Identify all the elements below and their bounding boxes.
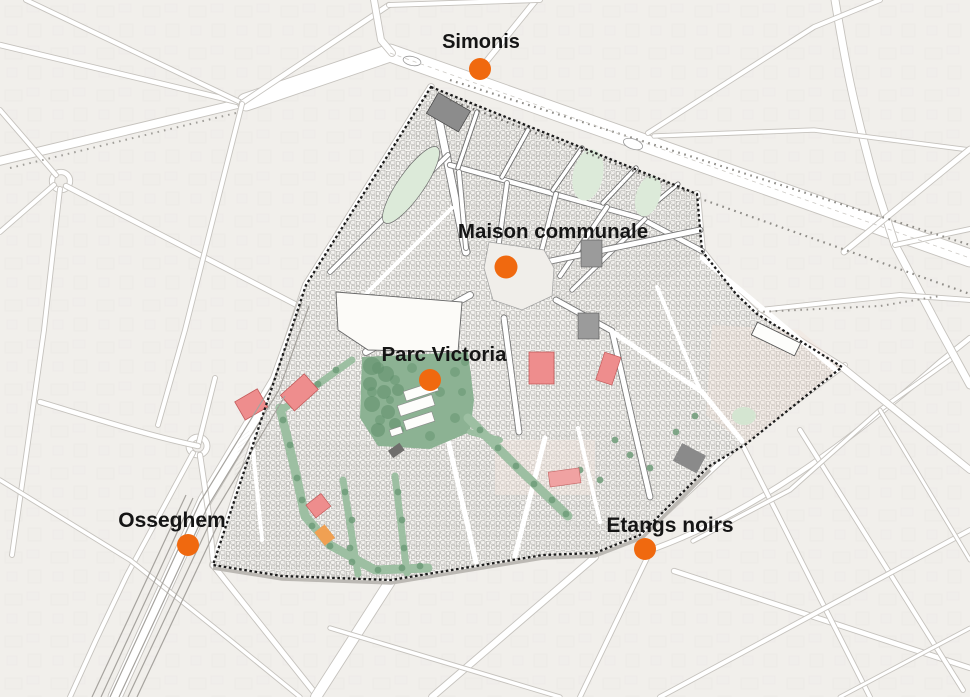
svg-text:Etangs noirs: Etangs noirs bbox=[606, 514, 733, 537]
svg-text:Simonis: Simonis bbox=[442, 31, 520, 53]
svg-text:Osseghem: Osseghem bbox=[118, 509, 225, 532]
svg-text:Maison communale: Maison communale bbox=[458, 220, 648, 243]
svg-text:Parc Victoria: Parc Victoria bbox=[382, 343, 508, 366]
